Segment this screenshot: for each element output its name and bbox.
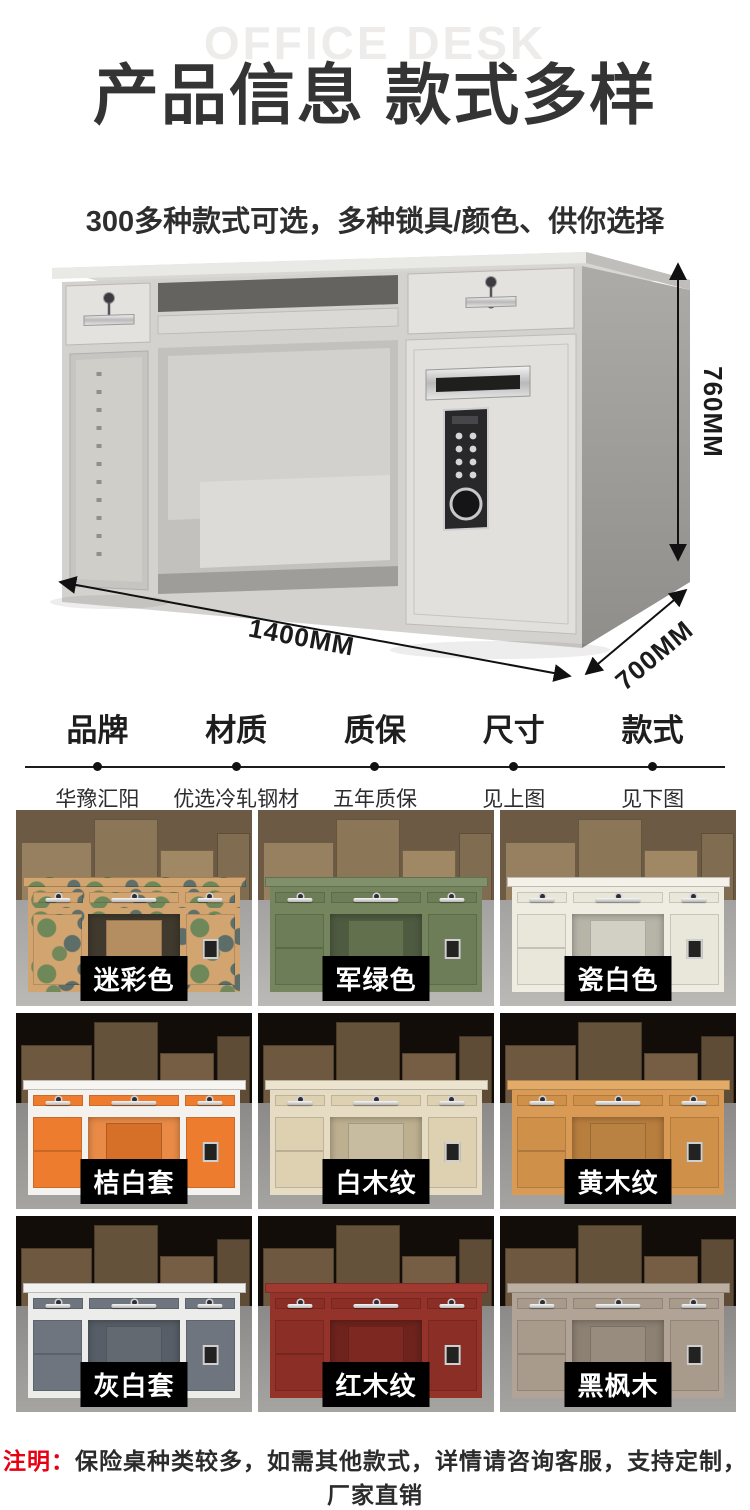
note-text: 保险桌种类较多，如需其他款式，详情请咨询客服，支持定制，厂家直销 xyxy=(75,1448,747,1508)
style-photo-gray-white: 灰白套 xyxy=(16,1216,252,1412)
lock-knob xyxy=(451,489,481,519)
spec-dot xyxy=(93,762,102,771)
spec-header: 款式 xyxy=(583,710,722,752)
footer-note: 注明：保险桌种类较多，如需其他款式，详情请咨询客服，支持定制，厂家直销 xyxy=(0,1442,750,1510)
dim-depth-label: 700MM xyxy=(609,614,699,690)
left-drawer-handle xyxy=(84,315,134,326)
spec-value: 见下图 xyxy=(583,783,722,813)
spec-col-warranty: 质保 五年质保 xyxy=(306,710,445,813)
page-header: OFFICE DESK 产品信息 款式多样 300多种款式可选，多种锁具/颜色、… xyxy=(0,0,750,230)
left-drawer-lock-icon xyxy=(104,293,115,304)
style-photo-yellow-wood: 黄木纹 xyxy=(500,1013,736,1209)
right-drawer-handle xyxy=(466,297,516,308)
style-label: 黑枫木 xyxy=(564,1362,671,1407)
right-drawer-lock-icon xyxy=(486,277,497,288)
style-label: 桔白套 xyxy=(80,1159,187,1204)
page-subtitle: 300多种款式可选，多种锁具/颜色、供你选择 xyxy=(0,198,750,240)
spec-value: 五年质保 xyxy=(306,783,445,813)
style-photo-camouflage: 迷彩色 xyxy=(16,810,252,1006)
desk-illustration: 760MM 1400MM 700MM xyxy=(0,230,750,690)
style-photo-red-wood: 红木纹 xyxy=(258,1216,494,1412)
spec-header: 质保 xyxy=(306,710,445,752)
style-label: 迷彩色 xyxy=(80,956,187,1001)
spec-value: 华豫汇阳 xyxy=(28,783,167,813)
spec-col-size: 尺寸 见上图 xyxy=(444,710,583,813)
dim-height-label: 760MM xyxy=(698,366,728,458)
style-photo-orange-white: 桔白套 xyxy=(16,1013,252,1209)
spec-value: 见上图 xyxy=(444,783,583,813)
spec-dot xyxy=(509,762,518,771)
spec-header: 品牌 xyxy=(28,710,167,752)
spec-value: 优选冷轧钢材 xyxy=(167,783,306,813)
product-dimension-image: 760MM 1400MM 700MM xyxy=(0,230,750,690)
spec-table: 品牌 华豫汇阳 材质 优选冷轧钢材 质保 五年质保 尺寸 见上图 款式 见下图 xyxy=(0,690,750,810)
style-photo-white-wood: 白木纹 xyxy=(258,1013,494,1209)
style-label: 军绿色 xyxy=(322,956,429,1001)
style-label: 瓷白色 xyxy=(564,956,671,1001)
spec-col-style: 款式 见下图 xyxy=(583,710,722,813)
spec-dot xyxy=(648,762,657,771)
style-grid: 迷彩色 军绿色 瓷白色 桔白套 xyxy=(16,810,750,1412)
spec-header: 材质 xyxy=(167,710,306,752)
style-label: 黄木纹 xyxy=(564,1159,671,1204)
spec-header: 尺寸 xyxy=(444,710,583,752)
style-label: 红木纹 xyxy=(322,1362,429,1407)
desk-side xyxy=(582,266,690,648)
style-photo-porcelain-white: 瓷白色 xyxy=(500,810,736,1006)
spec-dot xyxy=(232,762,241,771)
style-label: 白木纹 xyxy=(322,1159,429,1204)
style-label: 灰白套 xyxy=(80,1362,187,1407)
style-photo-army-green: 军绿色 xyxy=(258,810,494,1006)
spec-dot xyxy=(370,762,379,771)
spec-col-brand: 品牌 华豫汇阳 xyxy=(28,710,167,813)
style-photo-black-maple: 黑枫木 xyxy=(500,1216,736,1412)
note-prefix: 注明： xyxy=(3,1448,75,1474)
page-title: 产品信息 款式多样 xyxy=(0,42,750,138)
spec-col-material: 材质 优选冷轧钢材 xyxy=(167,710,306,813)
